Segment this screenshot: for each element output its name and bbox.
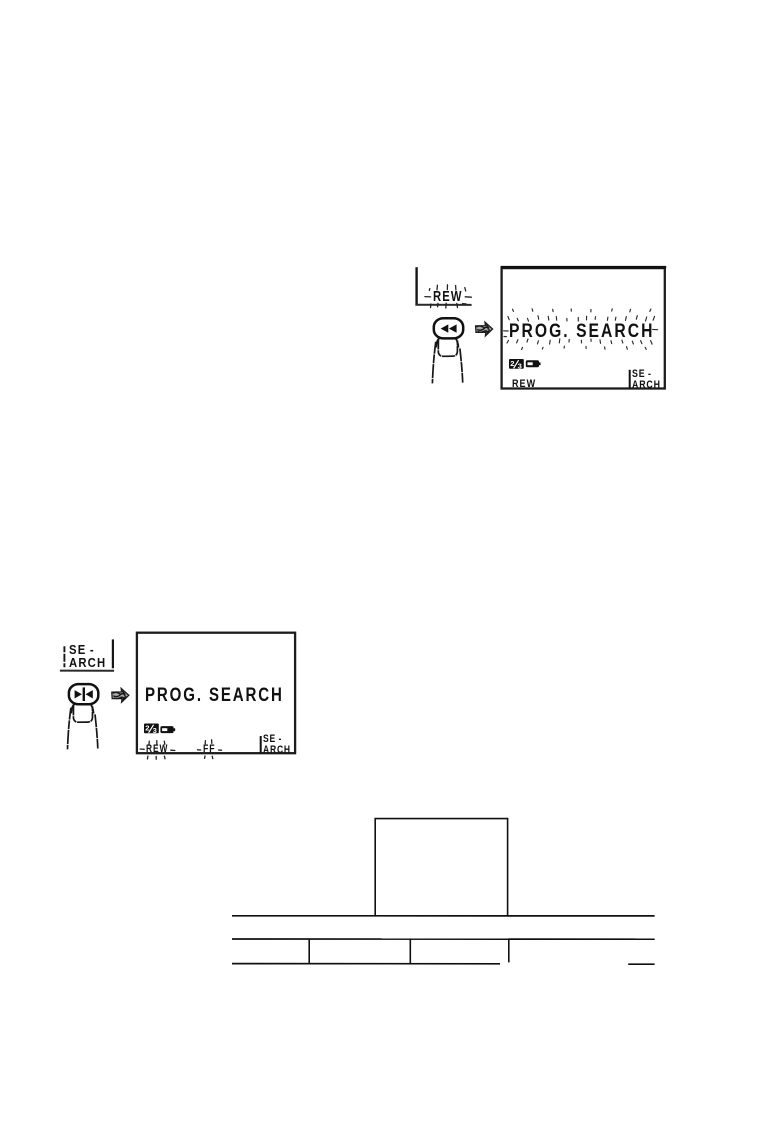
svg-text:3: 3 xyxy=(518,362,522,371)
svg-text:3: 3 xyxy=(153,726,157,735)
svg-text:2: 2 xyxy=(145,723,149,732)
svg-text:2: 2 xyxy=(510,359,514,368)
